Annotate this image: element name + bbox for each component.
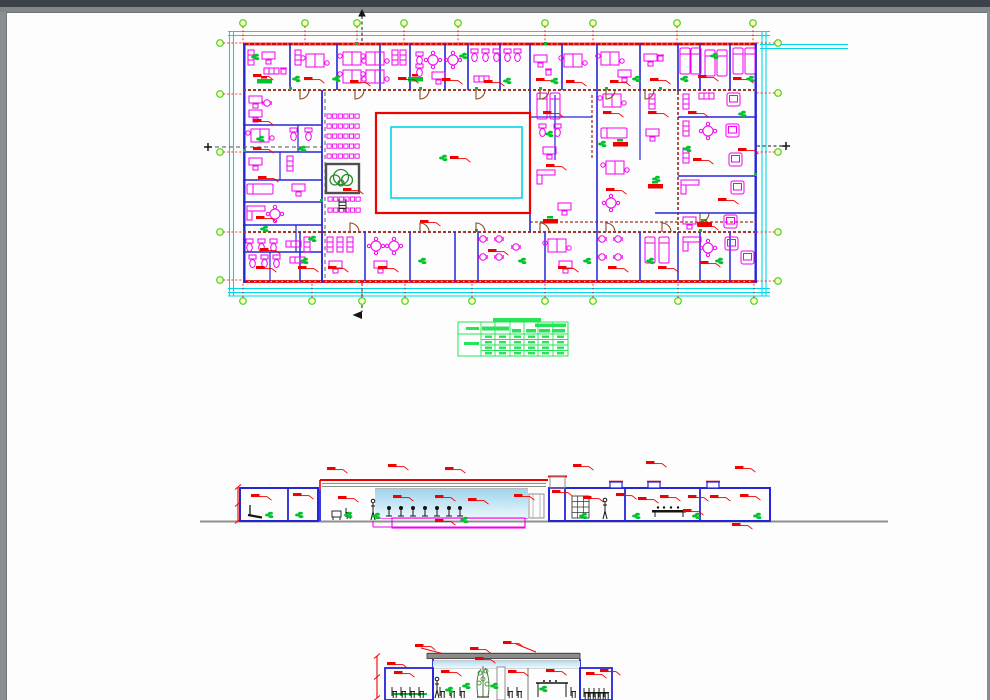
glyph-dimv [374,654,380,700]
glyph-wc [305,128,312,141]
drawing-line [466,159,471,163]
drawing-circle [496,236,502,242]
plant-icon [304,261,309,264]
glyph-gdot [539,87,542,90]
grid-bubble [751,298,758,305]
drawing-circle [338,72,342,76]
drawing-line [603,511,605,519]
drawing-circle [609,208,612,211]
drawing-circle [706,253,709,256]
plant-icon [684,79,689,82]
drawing-line [716,264,721,268]
glyph-chairS [508,687,513,698]
wc-bowl [250,260,256,268]
drawing-rect [729,153,742,166]
glyph-door [540,223,549,232]
glyph-gdot [659,87,662,90]
drawing-rect [355,280,358,283]
plant-icon [302,149,307,152]
plant-icon [463,56,468,59]
glyph-cab [683,94,689,109]
drawing-path [420,90,429,99]
glyph-plant [746,76,754,82]
drawing-circle [706,136,709,139]
glyph-ochair [614,254,622,260]
glyph-label [450,156,471,162]
drawing-rect [683,121,689,136]
drawing-rect [731,181,744,194]
plant-icon [311,236,316,239]
drawing-rect [648,62,653,66]
drawing-circle [266,212,269,215]
glyph-label [251,494,272,500]
legend-cell-mark [557,347,564,349]
drawing-rect [537,170,555,175]
drawing-rect [547,155,552,159]
glyph-label [616,493,637,499]
grid-bubble [674,20,681,27]
plant-icon [587,261,592,264]
glyph-gdot [355,42,358,45]
wc-bowl [274,260,280,268]
drawing-circle [615,254,621,260]
drawing-rect [539,87,542,90]
drawing-rect [355,144,359,148]
plant-icon [259,136,264,139]
drawing-rect [400,50,406,65]
drawing-rect [305,128,312,132]
grid-bubble [775,40,782,47]
drawing-line [394,269,399,273]
glyph-chrow [328,197,360,201]
drawing-circle [602,201,605,204]
cad-viewer-window [0,0,990,700]
glyph-ochair [479,254,487,260]
wc-bowl [417,57,423,65]
drawing-rect [355,42,358,45]
plant-icon [494,686,499,689]
drawing-rect [338,144,342,148]
glyph-bubble [469,283,476,305]
grid-bubble [217,40,224,47]
glyph-cab [295,50,301,65]
plant-icon [687,149,692,152]
drawing-circle [431,65,434,68]
glyph-plant [439,155,447,161]
glyph-label [546,164,567,170]
glyph-bedV [680,48,690,74]
drawing-rect [339,197,343,201]
drawing-circle [399,506,403,510]
drawing-path [662,223,671,232]
glyph-bedH [247,184,273,194]
plant-icon [750,79,755,82]
legend-cell-mark [499,352,506,354]
glyph-person [435,677,439,698]
grid-bubble [401,20,408,27]
drawing-line [267,497,272,501]
glyph-label [693,158,714,164]
drawing-rect [683,242,688,251]
drawing-circle [342,175,353,186]
drawing-rect [249,110,262,117]
glyph-desks2 [543,239,571,252]
drawing-circle [657,506,659,508]
glyph-plant [256,136,264,142]
plant-icon [742,114,747,117]
drawing-rect [683,217,696,224]
glyph-tableR [602,194,619,211]
drawing-circle [703,243,713,253]
glyph-sofaL [537,170,555,184]
plant-icon [741,111,746,114]
glyph-door [350,223,359,232]
glyph-gdot [289,87,292,90]
drawing-circle [392,237,395,240]
glyph-plant [598,141,606,147]
glyph-bubble [757,149,782,156]
drawing-rect [732,156,740,163]
glyph-gdot [355,280,358,283]
glyph-label [732,523,753,529]
wc-bowl [505,54,511,62]
wc-bowl [515,54,521,62]
plant-icon [506,78,511,81]
plant-icon [465,683,470,686]
drawing-rect [537,175,542,184]
plant-icon [449,690,454,693]
drawing-circle [270,209,280,219]
drawing-rect [273,255,280,259]
plant-icon [466,686,471,689]
glyph-wc [273,255,280,268]
glyph-chairS [401,687,406,698]
wc-bowl [472,54,478,62]
drawing-rect [253,166,258,170]
drawing-rect [355,134,359,138]
drawing-rect [281,69,286,74]
drawing-circle [477,681,481,685]
wc-bowl [291,133,297,141]
glyph-label [304,77,325,83]
cad-drawing-svg[interactable] [0,0,990,700]
glyph-label [546,669,567,675]
glyph-desk [534,55,547,67]
plant-icon [264,229,269,232]
grid-bubble [590,298,597,305]
drawing-rect [247,206,265,211]
drawing-line [354,499,359,503]
drawing-rect [243,149,246,152]
grid-bubble [217,229,224,236]
glyph-label [552,490,573,496]
glyph-cab [287,156,293,171]
glyph-cab [392,50,398,65]
drawing-circle [280,212,283,215]
drawing-line [574,269,579,273]
grid-bubble [775,278,782,285]
grid-bubble [240,20,247,27]
drawing-rect [601,128,627,138]
plant-icon [636,79,641,82]
drawing-line [435,690,437,698]
drawing-canvas[interactable] [7,13,987,700]
drawing-circle [273,205,276,208]
glyph-bench [652,506,686,517]
drawing-rect [427,654,580,659]
drawing-rect [289,87,292,90]
glyph-wc [539,124,546,137]
grid-bubble [775,149,782,156]
plant-icon [375,513,380,516]
drawing-rect [261,255,268,259]
glyph-desk [249,96,262,108]
glyph-gdot [605,87,608,90]
glyph-plant [550,78,558,84]
drawing-line [666,81,671,85]
glyph-ochair [479,236,487,242]
glyph-plant [632,513,640,519]
drawing-line [582,83,587,87]
glyph-door [420,223,429,232]
plant-icon [299,515,304,518]
drawing-rect [538,63,543,67]
drawing-rect [550,477,565,488]
marker-arrow [358,9,366,17]
legend-cell-mark [514,336,521,338]
legend-bar [526,329,536,333]
drawing-rect [349,154,353,158]
glyph-chairS [410,687,415,698]
drawing-rect [355,154,359,158]
drawing-path [355,90,364,99]
glyph-label [606,188,627,194]
plant-icon [522,261,527,264]
glyph-label [658,266,679,272]
glyph-gdot [699,229,702,232]
grid-bubble [309,298,316,305]
drawing-rect [646,129,659,136]
glyph-chrow [327,114,359,118]
drawing-circle [677,506,679,508]
drawing-line [343,470,348,474]
glyph-sofaL [683,237,701,251]
drawing-line [616,672,621,676]
drawing-rect [644,54,657,61]
drawing-rect [246,239,253,243]
drawing-rect [349,114,353,118]
glyph-tableR [699,122,716,139]
drawing-rect [562,211,567,215]
drawing-line [431,647,436,651]
glyph-plant [295,512,303,518]
grid-bubble [354,20,361,27]
plant-icon [718,258,723,261]
plant-icon [586,258,591,261]
plant-icon [543,689,548,692]
glyph-rtable [648,181,663,189]
legend-grid [458,318,568,356]
legend-table [458,318,568,356]
drawing-rect [728,240,736,247]
glyph-tableR [424,51,441,68]
grid-bubble [359,298,366,305]
plant-icon [635,513,640,516]
plant-icon [268,512,273,515]
drawing-rect [337,237,343,252]
glyph-cab [337,237,343,252]
drawing-rect [350,208,354,212]
plant-icon [719,261,724,264]
drawing-line [457,673,462,677]
drawing-line [756,497,761,501]
drawing-circle [381,244,384,247]
drawing-circle [699,129,702,132]
plant-icon [542,686,547,689]
glyph-desks2 [301,54,329,67]
glyph-ochair [512,244,520,250]
glyph-plant [680,76,688,82]
glyph-chair [545,69,552,75]
glyph-tableR [367,237,384,254]
plant-icon [263,226,268,229]
legend-cell-mark [514,347,521,349]
glyph-label [388,464,409,470]
legend-cell-mark [528,347,535,349]
plant-icon [464,520,469,523]
plant-icon [376,516,381,519]
drawing-path [420,223,429,232]
drawing-line [626,83,631,87]
drawing-line [622,191,627,195]
glyph-label [600,669,621,675]
drawing-circle [603,498,607,502]
glyph-plant [260,226,268,232]
glyph-label [660,495,681,501]
drawing-circle [609,194,612,197]
drawing-rect [327,237,333,252]
legend-cell-mark [499,341,506,343]
glyph-label [394,671,415,677]
glyph-desk [618,70,631,82]
glyph-desk [262,52,275,64]
drawing-rect [544,42,547,45]
glyph-tableR [699,239,716,256]
drawing-rect [249,255,256,259]
grid-bubble [590,20,597,27]
drawing-line [461,470,466,474]
glyph-cabH [264,68,279,74]
glyph-door [606,223,615,232]
drawing-rect [327,154,331,158]
plant-icon [507,81,512,84]
glyph-rtable [543,216,558,224]
legend-cell-mark [485,352,492,354]
drawing-rect [264,68,279,74]
plant-icon [463,517,468,520]
drawing-circle [451,51,454,54]
drawing-circle [435,677,439,681]
plant-icon [636,516,641,519]
drawing-rect [687,225,692,229]
drawing-rect [320,199,323,202]
glyph-bedV [733,48,743,74]
drawing-circle [599,254,605,260]
glyph-door [540,90,549,99]
drawing-rect [247,211,252,220]
drawing-rect [347,237,353,252]
drawing-rect [326,164,359,193]
drawing-circle [513,244,519,250]
glyph-plant [462,683,470,689]
drawing-rect [356,197,360,201]
drawing-line [562,167,567,171]
grid-bubble [542,20,549,27]
glyph-label [688,111,709,117]
drawing-rect [344,154,348,158]
plant-icon [269,515,274,518]
glyph-label [298,266,319,272]
drawing-line [714,78,719,82]
legend-cell-mark [528,341,535,343]
drawing-rect [375,489,528,518]
drawing-rect [650,137,655,141]
drawing-rect [266,60,271,64]
glyph-chrow [327,124,359,128]
drawing-rect [741,251,754,264]
legend-bar [493,318,541,322]
glyph-gdot [544,42,547,45]
plant-icon [655,176,660,179]
drawing-circle [447,506,451,510]
drawing-circle [435,506,439,510]
drawing-rect [683,94,689,109]
drawing-rect [349,144,353,148]
glyph-cab [347,237,353,252]
wc-bowl [306,133,312,141]
drawing-rect [543,147,556,154]
grid-bubble [750,20,757,27]
grid-bubble [217,277,224,284]
glyph-label [338,496,359,502]
glyph-plant [583,258,591,264]
glyph-wc [290,128,297,141]
glyph-plant [344,512,352,518]
glyph-tableR [266,205,283,222]
glyph-desks2 [601,161,629,174]
drawing-rect [681,180,699,185]
drawing-rect [349,134,353,138]
glyph-sofaL [681,180,699,194]
plant-icon [462,53,467,56]
glyph-armch [727,93,740,106]
glyph-treadmill [248,505,262,518]
plant-icon [656,179,661,182]
drawing-circle [424,58,427,61]
drawing-circle [549,680,551,682]
drawing-rect [734,184,742,191]
plant-icon [298,512,303,515]
drawing-circle [387,506,391,510]
glyph-chairS [571,687,576,698]
plant-icon [335,76,340,79]
glyph-cab [400,50,406,65]
drawing-circle [601,163,605,167]
drawing-line [248,515,262,518]
legend-cell-mark [514,341,521,343]
drawing-rect [327,124,331,128]
drawing-circle [392,251,395,254]
